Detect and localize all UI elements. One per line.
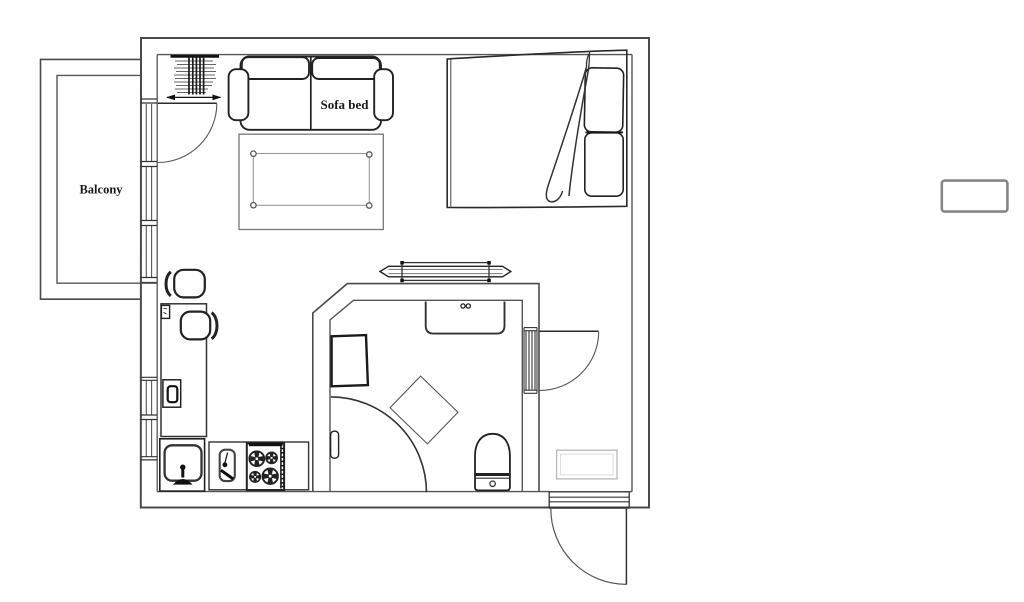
svg-text:Sofa bed: Sofa bed [320, 97, 369, 112]
svg-text:Balcony: Balcony [79, 183, 123, 197]
